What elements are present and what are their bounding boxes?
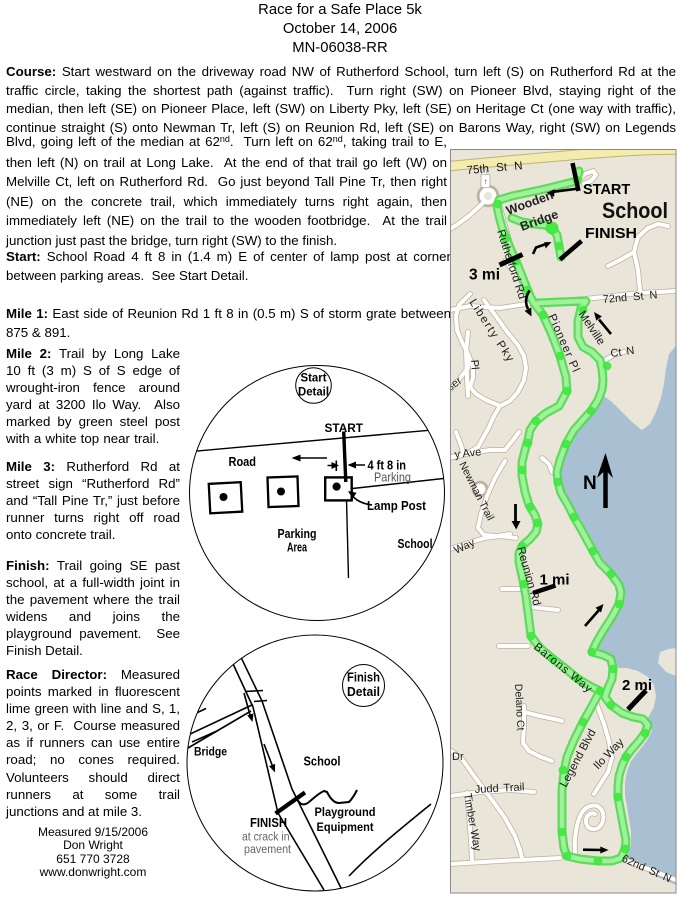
svg-text:Delano Ct: Delano Ct	[512, 684, 526, 731]
svg-text:Start: Start	[301, 373, 327, 385]
svg-text:Road: Road	[229, 455, 257, 469]
svg-text:3 mi: 3 mi	[469, 267, 500, 284]
svg-text:N: N	[583, 473, 597, 494]
svg-text:2 mi: 2 mi	[622, 677, 652, 694]
svg-text:School: School	[602, 198, 668, 223]
svg-text:at crack in: at crack in	[242, 832, 290, 844]
svg-text:↑: ↑	[484, 177, 488, 186]
svg-text:Playground: Playground	[315, 805, 376, 819]
svg-text:START: START	[325, 421, 364, 435]
svg-text:FINISH: FINISH	[250, 815, 287, 830]
svg-text:Lamp Post: Lamp Post	[367, 498, 427, 513]
svg-text:Pl: Pl	[468, 359, 481, 370]
svg-text:Detail: Detail	[298, 387, 329, 399]
svg-text:Equipment: Equipment	[317, 820, 374, 834]
svg-text:Parking: Parking	[374, 471, 411, 485]
svg-text:Finish: Finish	[347, 671, 380, 685]
svg-text:FINISH: FINISH	[585, 225, 637, 242]
svg-text:School: School	[304, 755, 341, 769]
svg-text:START: START	[583, 182, 630, 198]
svg-text:Detail: Detail	[347, 685, 380, 699]
svg-text:pavement: pavement	[244, 844, 292, 856]
svg-text:Area: Area	[287, 540, 308, 555]
svg-text:School: School	[398, 537, 433, 551]
svg-text:Bridge: Bridge	[194, 745, 227, 759]
svg-text:Dr: Dr	[452, 751, 464, 763]
